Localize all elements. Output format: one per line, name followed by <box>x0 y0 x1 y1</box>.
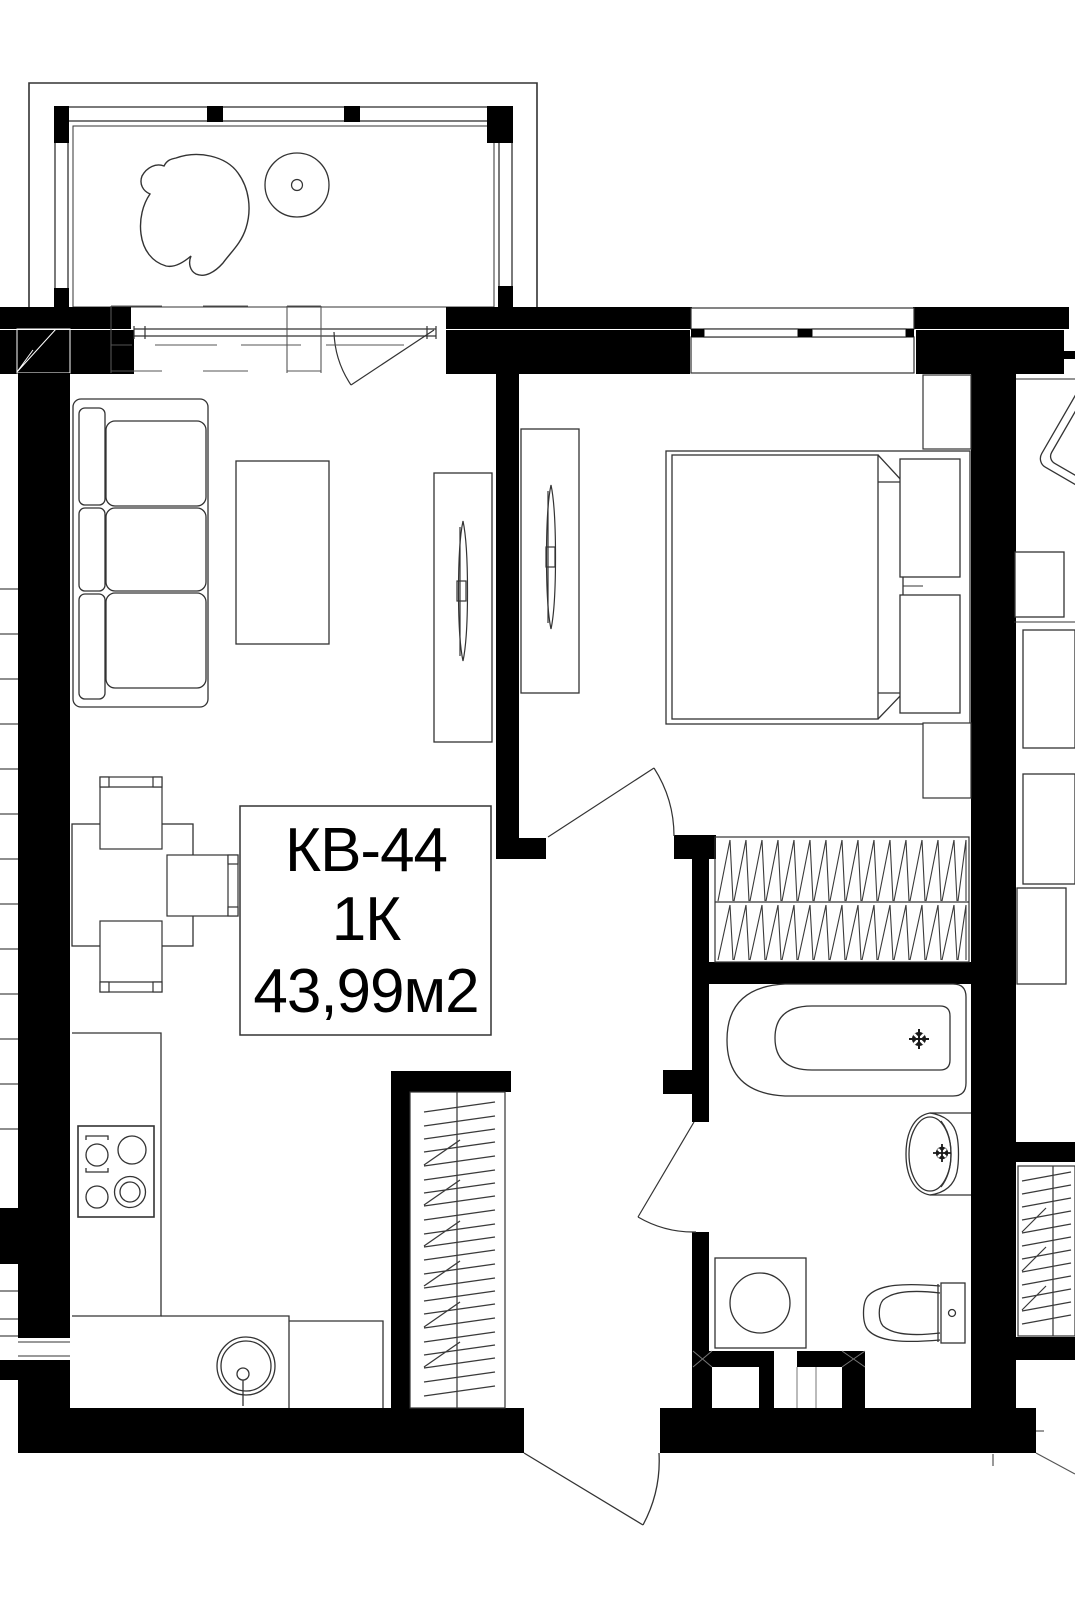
svg-text:43,99м2: 43,99м2 <box>253 957 478 1026</box>
svg-text:1К: 1К <box>332 885 401 954</box>
svg-text:КВ-44: КВ-44 <box>285 816 447 885</box>
